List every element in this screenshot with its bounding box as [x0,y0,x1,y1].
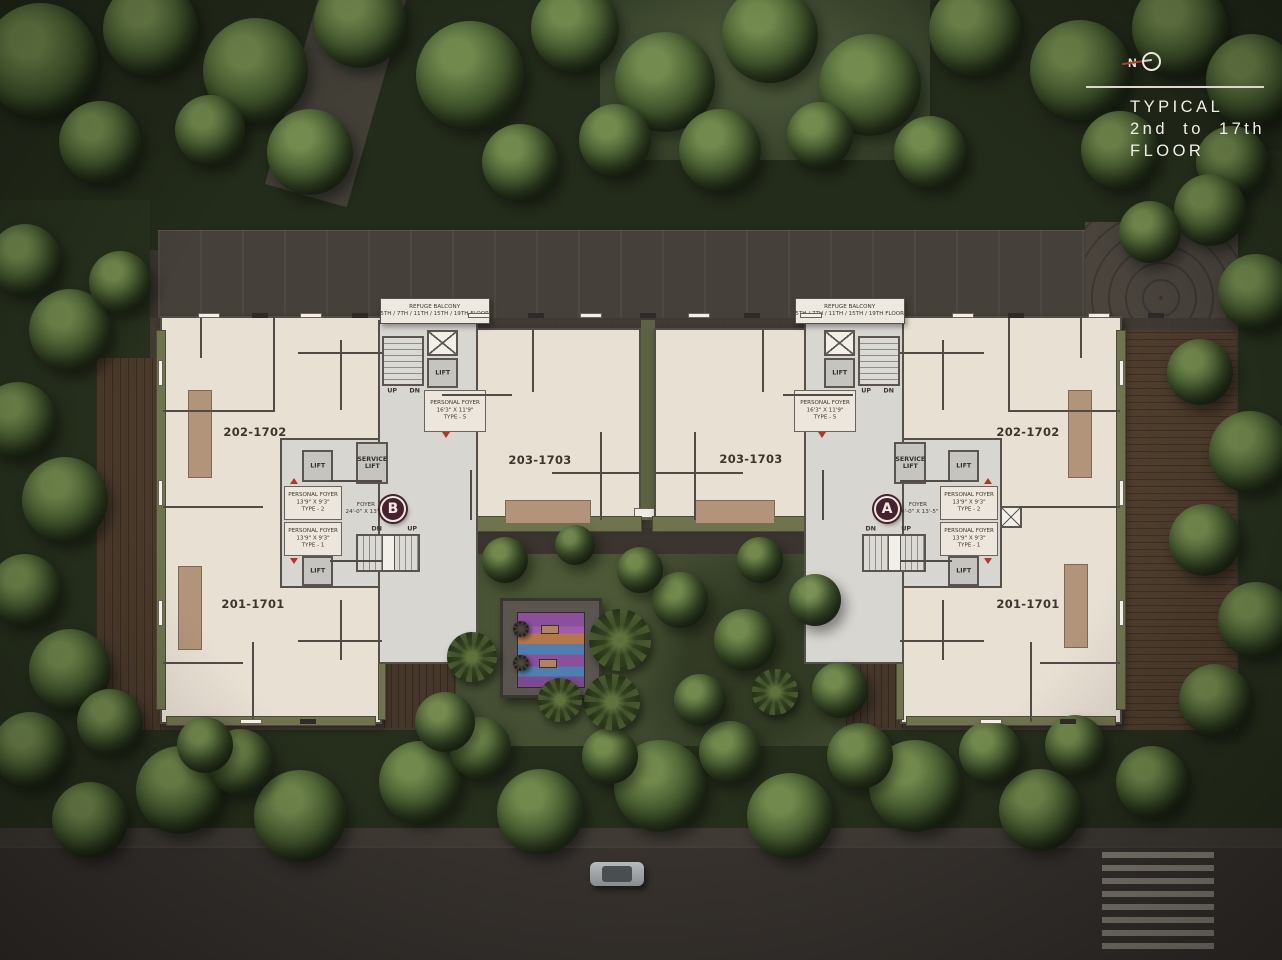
floor-title: TYPICAL 2nd to 17th FLOOR [1130,96,1265,162]
foyer-label: FOYER 24'-0" X 13'-5" [896,498,940,520]
bin [196,734,205,746]
partition-wall [330,560,382,562]
lift-label: LIFT [310,462,325,469]
floor-title-line1: TYPICAL [1130,96,1265,118]
entry-marker [984,478,992,484]
wood-deck-left [96,358,162,740]
partition-wall [783,394,853,396]
lift-shaft-icon [824,330,855,356]
window-strip [300,313,322,318]
pool-lounger [541,625,559,634]
service-lift-label2: LIFT [365,463,380,470]
bin [220,734,229,746]
unit-label: 203-1703 [490,453,590,467]
unit-label: 203-1703 [701,452,801,466]
lift-label: LIFT [832,369,847,376]
service-lift: SERVICE LIFT [356,442,388,484]
partition-wall [340,340,342,410]
window-strip [352,313,368,318]
partition-wall [252,642,254,722]
partition-wall [273,318,275,412]
compass-circle-icon [1142,52,1161,71]
window-strip [300,719,316,724]
pool-lounger [539,659,557,668]
partition-wall [655,472,743,474]
partition-wall [470,470,472,520]
deck-balcony [178,566,202,650]
personal-foyer-type1: PERSONAL FOYER 13'9" X 9'3" TYPE - 1 [940,522,998,556]
partition-wall [900,560,952,562]
lift-label: LIFT [956,567,971,574]
window-strip [528,313,544,318]
window-strip [640,313,656,318]
legend-divider [1086,86,1264,88]
service-lift: SERVICE LIFT [894,442,926,484]
dn-label: DN [371,525,382,532]
lift: LIFT [948,450,979,482]
partition-wall [163,662,243,664]
partition-wall [1008,410,1120,412]
window-strip [580,313,602,318]
unit-label: 202-1702 [205,425,305,439]
bin [208,734,217,746]
refuge-balcony-note: REFUGE BALCONY 5TH / 7TH / 11TH / 15TH /… [380,298,490,324]
window-strip [468,313,490,318]
pf-line3: TYPE - 5 [430,415,480,422]
personal-foyer-type2: PERSONAL FOYER 13'9" X 9'3" TYPE - 2 [284,486,342,520]
floor-title-line2: 2nd to 17th [1130,118,1265,140]
partition-wall [942,340,944,410]
partition-wall [163,410,275,412]
umbrella-icon [513,621,529,637]
pedestrian-crossing [1102,852,1214,956]
partition-wall [822,470,824,520]
window-strip [744,313,760,318]
entry-marker [984,558,992,564]
window-strip [1148,313,1164,318]
parking-strip [158,230,1238,322]
car [590,862,644,886]
dn-label: DN [409,387,420,394]
up-label: UP [901,525,911,532]
staircase [382,336,424,386]
partition-wall [330,480,382,482]
partition-wall [442,394,512,396]
stair-landing [382,535,395,571]
personal-foyer-type5: PERSONAL FOYER 16'3" X 11'9" TYPE - 5 [794,390,856,432]
service-lift-label1: SERVICE [357,456,387,463]
window-strip [1060,719,1076,724]
window-strip [1119,360,1124,386]
pf-line3: TYPE - 5 [800,415,850,422]
window-strip [1119,600,1124,626]
lift: LIFT [302,556,333,586]
window-strip [952,313,974,318]
pool [500,598,602,698]
partition-wall [600,432,602,520]
site-plan-render: REFUGE BALCONY 5TH / 7TH / 11TH / 15TH /… [0,0,1282,960]
balcony-strip [156,330,166,710]
unit-label: 202-1702 [978,425,1078,439]
partition-wall [942,600,944,660]
partition-wall [694,432,696,520]
lift-shaft-icon [1000,506,1022,528]
window-strip [688,313,710,318]
window-strip [980,719,1002,724]
sidewalk [0,828,1282,848]
bin [232,734,241,746]
balcony-strip [906,716,1116,726]
entry-marker [442,432,450,438]
deck-balcony [695,500,775,524]
lift: LIFT [302,450,333,482]
wood-deck-right [1124,330,1236,732]
deck-balcony [505,500,591,524]
up-label: UP [387,387,397,394]
partition-wall [1030,642,1032,722]
window-strip [240,719,262,724]
pf-line3: TYPE - 1 [944,543,994,550]
unit-label: 201-1701 [203,597,303,611]
window-strip [158,360,163,386]
dn-label: DN [865,525,876,532]
partition-wall [552,472,640,474]
partition-wall [163,506,263,508]
tower-b-badge: B [380,496,406,522]
window-strip [800,313,822,318]
window-strip [158,600,163,626]
partition-wall [200,318,202,358]
window-strip [252,313,268,318]
service-lift-label1: SERVICE [895,456,925,463]
partition-wall [340,600,342,660]
pf-line3: TYPE - 2 [944,507,994,514]
foyer-line2: 24'-0" X 13'-5" [898,509,939,516]
lift: LIFT [948,556,979,586]
personal-foyer-type2: PERSONAL FOYER 13'9" X 9'3" TYPE - 2 [940,486,998,520]
window-strip [1008,313,1024,318]
north-compass: N [1128,52,1208,76]
grass-patch [600,0,930,160]
partition-wall [762,330,764,392]
partition-wall [1008,318,1010,412]
car-windshield [602,866,632,882]
tower-a-badge: A [874,496,900,522]
window-strip [198,313,220,318]
lift: LIFT [824,358,855,388]
up-label: UP [861,387,871,394]
personal-foyer-type1: PERSONAL FOYER 13'9" X 9'3" TYPE - 1 [284,522,342,556]
partition-wall [1040,662,1120,664]
personal-foyer-type5: PERSONAL FOYER 16'3" X 11'9" TYPE - 5 [424,390,486,432]
lift-shaft-icon [427,330,458,356]
window-strip [1088,313,1110,318]
partition-wall [1020,506,1120,508]
lift-label: LIFT [310,567,325,574]
lift: LIFT [427,358,458,388]
balcony-strip [166,716,376,726]
floor-title-line3: FLOOR [1130,140,1265,162]
umbrella-icon [513,655,529,671]
service-lift-label2: LIFT [903,463,918,470]
partition-wall [900,480,952,482]
lift-label: LIFT [435,369,450,376]
up-label: UP [407,525,417,532]
staircase [858,336,900,386]
balcony-strip [1116,330,1126,710]
window-strip [158,480,163,506]
pf-line3: TYPE - 1 [288,543,338,550]
entry-marker [290,558,298,564]
lift-label: LIFT [956,462,971,469]
window-strip [1119,480,1124,506]
stair-landing [888,535,901,571]
pf-line3: TYPE - 2 [288,507,338,514]
refuge-balcony-note: REFUGE BALCONY 5TH / 7TH / 11TH / 15TH /… [795,298,905,324]
partition-wall [532,330,534,392]
partition-wall [1080,318,1082,358]
entry-marker [290,478,298,484]
unit-label: 201-1701 [978,597,1078,611]
dn-label: DN [883,387,894,394]
center-gap-strip [641,320,655,520]
entry-marker [818,432,826,438]
